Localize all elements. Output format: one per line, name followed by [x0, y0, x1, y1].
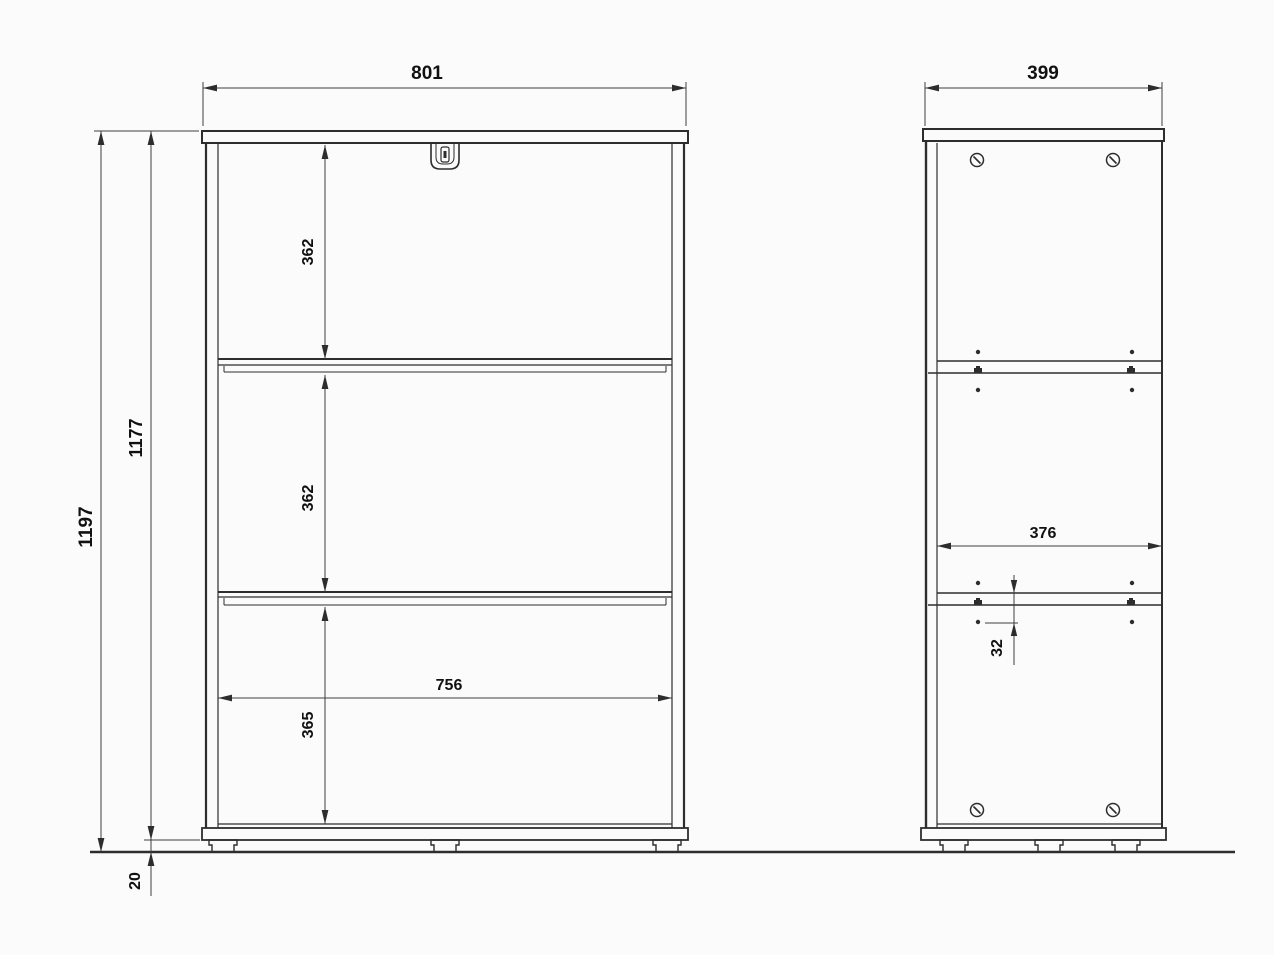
- side-feet: [940, 840, 1140, 852]
- dim-shelf-hole-offset: 32: [985, 575, 1018, 665]
- front-plinth: [202, 828, 688, 840]
- dim-compartment-3: 365: [300, 607, 328, 824]
- dim-label-376: 376: [1030, 525, 1057, 542]
- dim-label-399: 399: [1027, 63, 1059, 84]
- dim-overall-width: 801: [203, 63, 686, 126]
- side-plinth: [921, 828, 1166, 840]
- side-top-board: [923, 129, 1164, 141]
- screw-icon: [971, 154, 984, 167]
- dim-compartment-1: 362: [300, 145, 328, 359]
- front-shelf-1: [218, 359, 672, 372]
- dim-label-20: 20: [127, 872, 144, 890]
- technical-drawing-page: 801 399 1197 1177 20 362: [0, 0, 1274, 955]
- dim-inner-width: 756: [218, 677, 672, 701]
- screw-icons: [971, 154, 1120, 817]
- shelf-pin-holes: [976, 350, 1134, 624]
- front-top-board: [202, 131, 688, 143]
- dim-carcass-height: 1177: [126, 131, 200, 840]
- lock-fitting-icon: [431, 144, 459, 169]
- screw-icon: [1107, 804, 1120, 817]
- dim-overall-height: 1197: [76, 131, 199, 852]
- dim-overall-depth: 399: [925, 63, 1162, 126]
- front-view: [202, 131, 688, 852]
- dim-label-365: 365: [300, 712, 317, 739]
- dim-label-32: 32: [989, 639, 1006, 657]
- side-shelf-1: [928, 361, 1162, 373]
- side-view: [921, 129, 1166, 852]
- screw-icon: [971, 804, 984, 817]
- dim-label-362-middle: 362: [300, 485, 317, 512]
- dim-inner-depth: 376: [937, 525, 1162, 549]
- dim-compartment-2: 362: [300, 375, 328, 592]
- front-feet: [209, 840, 681, 852]
- side-shelf-2: [928, 593, 1162, 605]
- dim-label-1197: 1197: [76, 506, 97, 547]
- dim-label-801: 801: [411, 63, 443, 84]
- dim-label-756: 756: [436, 677, 463, 694]
- front-shelf-2: [218, 592, 672, 605]
- cabinet-dimension-drawing: 801 399 1197 1177 20 362: [0, 0, 1274, 955]
- dim-label-362-upper: 362: [300, 239, 317, 266]
- dim-label-1177: 1177: [126, 418, 146, 457]
- dim-foot-height: 20: [127, 840, 154, 896]
- screw-icon: [1107, 154, 1120, 167]
